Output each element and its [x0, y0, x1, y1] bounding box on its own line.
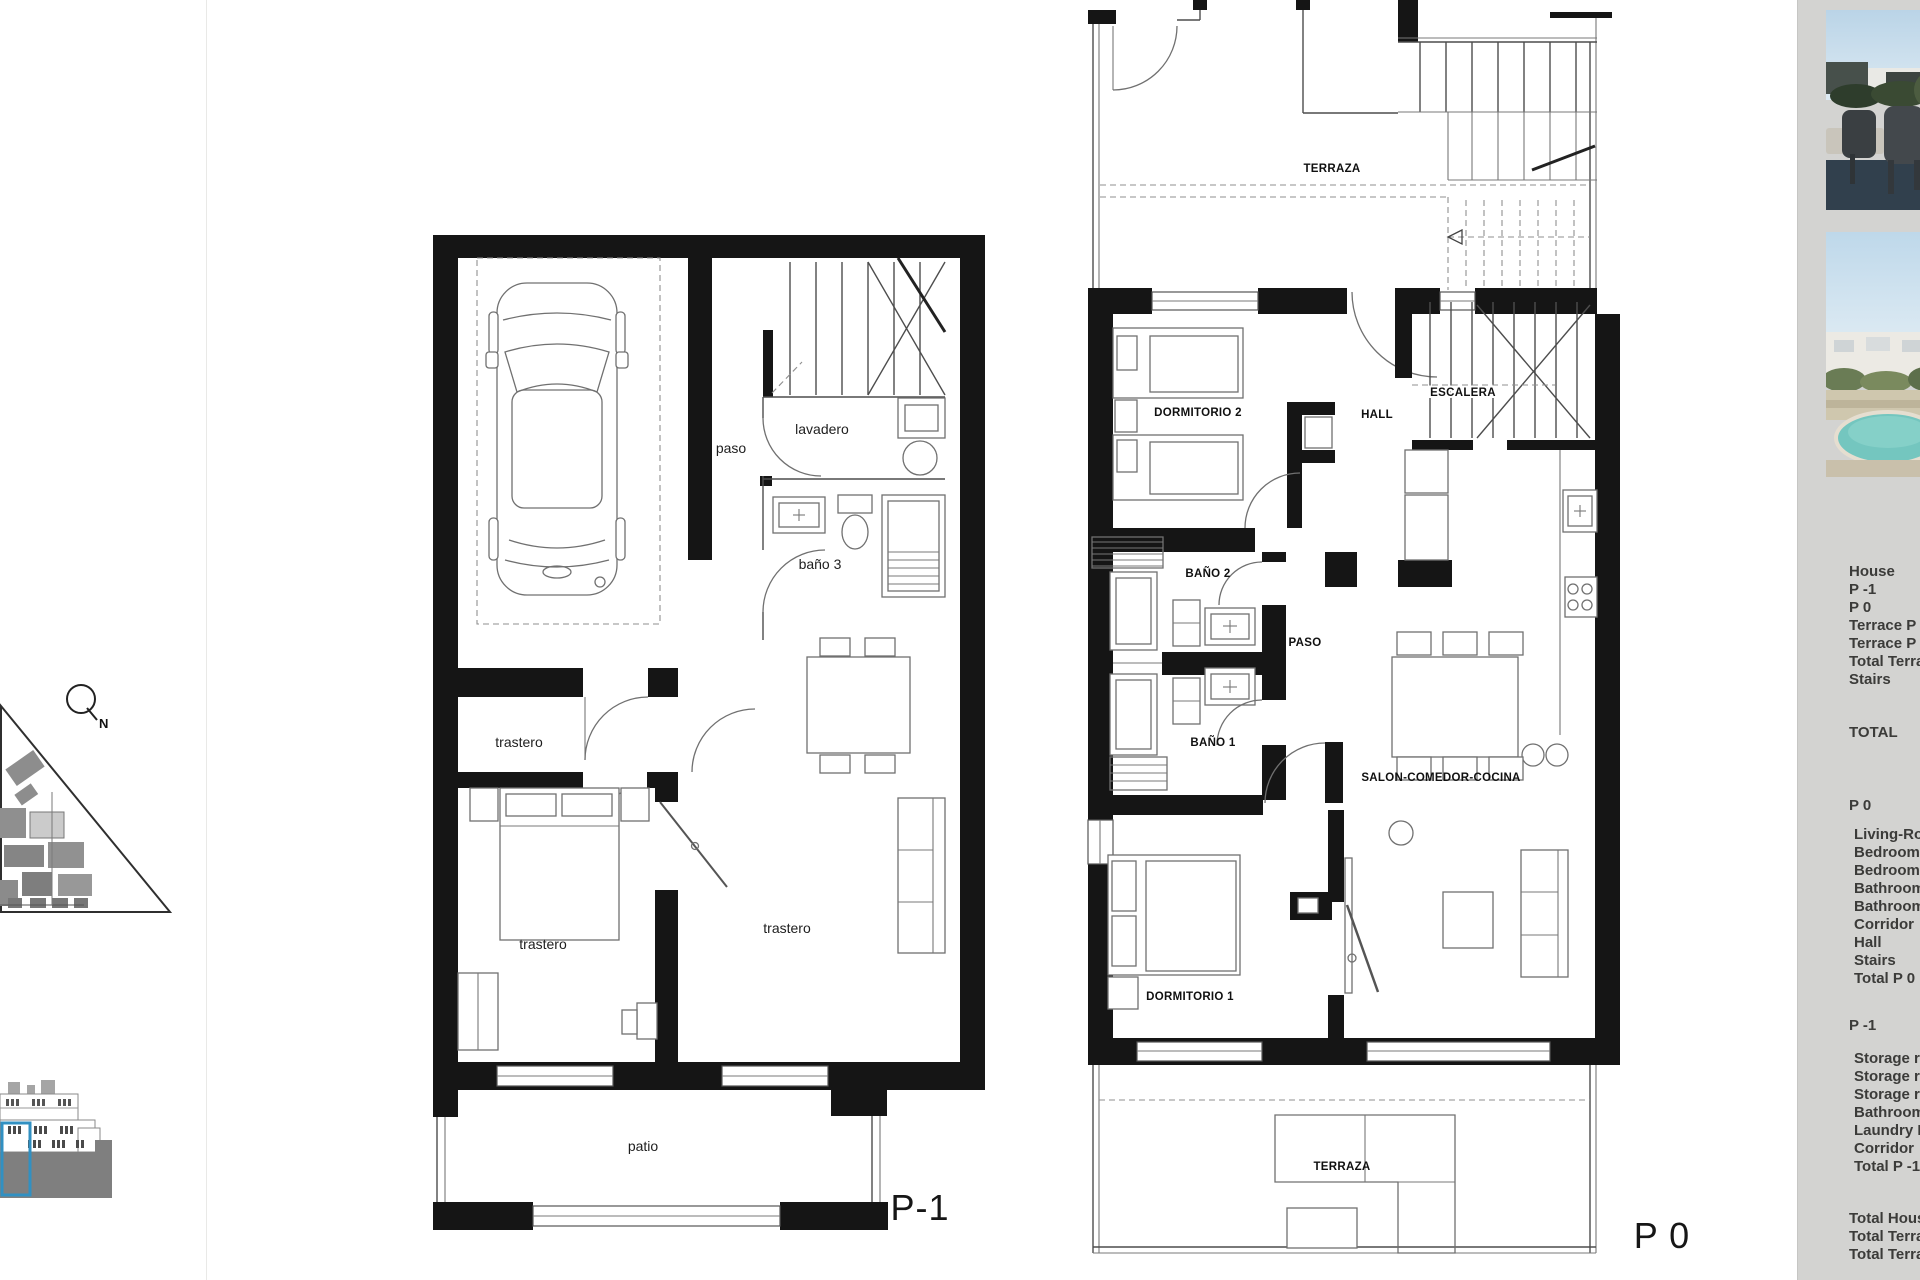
summary-row: P 0: [1849, 599, 1920, 617]
roof-terrace-outline: [1088, 0, 1612, 288]
summary-row: Storage room: [1849, 1050, 1920, 1068]
room-label-bano3: baño 3: [799, 556, 842, 572]
car-top-view: [486, 283, 628, 595]
summary-grand-total-row: Total House: [1849, 1210, 1920, 1228]
room-label-salon: SALON-COMEDOR-COCINA: [1361, 772, 1520, 784]
summary-row: Hall: [1849, 934, 1920, 952]
summary-row: Bathroom 2: [1849, 898, 1920, 916]
room-label-lavadero: lavadero: [795, 421, 849, 437]
site-plan: N: [0, 550, 210, 930]
summary-row: Storage room: [1849, 1086, 1920, 1104]
dormitorio1: [1088, 795, 1263, 1009]
summary-section-header: P -1: [1849, 1017, 1920, 1035]
roof-terrace-dashed-guides: [1100, 185, 1590, 290]
sidebar: House P -1 P 0 Terrace P -1 Terrace P 0 …: [1797, 0, 1920, 1280]
summary-row: Stairs: [1849, 671, 1920, 689]
sliding-door-partition: [1290, 810, 1378, 1038]
summary-row: Stairs: [1849, 952, 1920, 970]
room-label-hall: HALL: [1361, 409, 1393, 421]
summary-row: Terrace P 0: [1849, 635, 1920, 653]
summary-total-row: TOTAL: [1849, 724, 1920, 742]
summary-row: Total P -1: [1849, 1158, 1920, 1176]
summary-row: Bathroom 3: [1849, 1104, 1920, 1122]
summary-row: Corridor: [1849, 916, 1920, 934]
area-summary-list: House P -1 P 0 Terrace P -1 Terrace P 0 …: [1798, 0, 1920, 1264]
summary-row: Bedroom 2: [1849, 862, 1920, 880]
summary-row: Storage room: [1849, 1068, 1920, 1086]
room-label-trastero-c: trastero: [763, 920, 811, 936]
living-furniture: [1389, 821, 1568, 977]
dining-set: [1392, 632, 1523, 780]
north-label: N: [99, 716, 108, 731]
summary-row: Bedroom 1: [1849, 844, 1920, 862]
building-elevation: [0, 1080, 112, 1198]
floor-label-p1: P-1: [890, 1187, 949, 1228]
room-label-patio: patio: [628, 1138, 659, 1154]
room-label-dormitorio1: DORMITORIO 1: [1146, 991, 1234, 1003]
summary-grand-total-row: Total Terraces: [1849, 1246, 1920, 1264]
summary-row: Corridor: [1849, 1140, 1920, 1158]
terrace-bottom: [1093, 1065, 1596, 1253]
room-label-terraza-roof: TERRAZA: [1303, 163, 1360, 175]
bathroom3-fixtures: [763, 495, 945, 612]
hall-closet: [1287, 402, 1335, 528]
floorplan-p0: TERRAZA DORMITORIO 2 HALL ESCALERA BAÑO …: [1080, 0, 1705, 1280]
summary-row: Bathroom 1: [1849, 880, 1920, 898]
room-label-terraza: TERRAZA: [1313, 1161, 1370, 1173]
summary-section-header: P 0: [1849, 797, 1920, 815]
p1-stairs: [763, 258, 945, 397]
room-label-bano1: BAÑO 1: [1190, 736, 1236, 749]
floor-plan-sheet: N: [0, 0, 1920, 1280]
room-label-bano2: BAÑO 2: [1185, 567, 1230, 580]
floorplan-p1: paso lavadero baño 3 trastero trastero t…: [420, 230, 1000, 1260]
summary-row: Total P 0: [1849, 970, 1920, 988]
floor-label-p0: P 0: [1634, 1215, 1690, 1256]
p1-furniture: [458, 638, 945, 1050]
summary-row: House: [1849, 563, 1920, 581]
elevation-drawing: [0, 1075, 130, 1205]
roof-terrace-stairs: [1398, 38, 1597, 180]
room-label-dormitorio2: DORMITORIO 2: [1154, 407, 1242, 419]
summary-grand-total-row: Total Terraces: [1849, 1228, 1920, 1246]
patio-walls: [437, 1116, 880, 1202]
room-label-escalera: ESCALERA: [1430, 387, 1496, 399]
summary-row: Living-Room: [1849, 826, 1920, 844]
summary-row: P -1: [1849, 581, 1920, 599]
summary-row: Terrace P -1: [1849, 617, 1920, 635]
room-label-paso: PASO: [1289, 637, 1322, 649]
summary-row: Total Terraces: [1849, 653, 1920, 671]
north-compass-icon: N: [67, 685, 108, 731]
room-label-trastero-b: trastero: [519, 936, 567, 952]
room-label-paso: paso: [716, 440, 747, 456]
room-label-trastero-a: trastero: [495, 734, 543, 750]
site-buildings: [0, 750, 92, 908]
summary-row: Laundry Room: [1849, 1122, 1920, 1140]
